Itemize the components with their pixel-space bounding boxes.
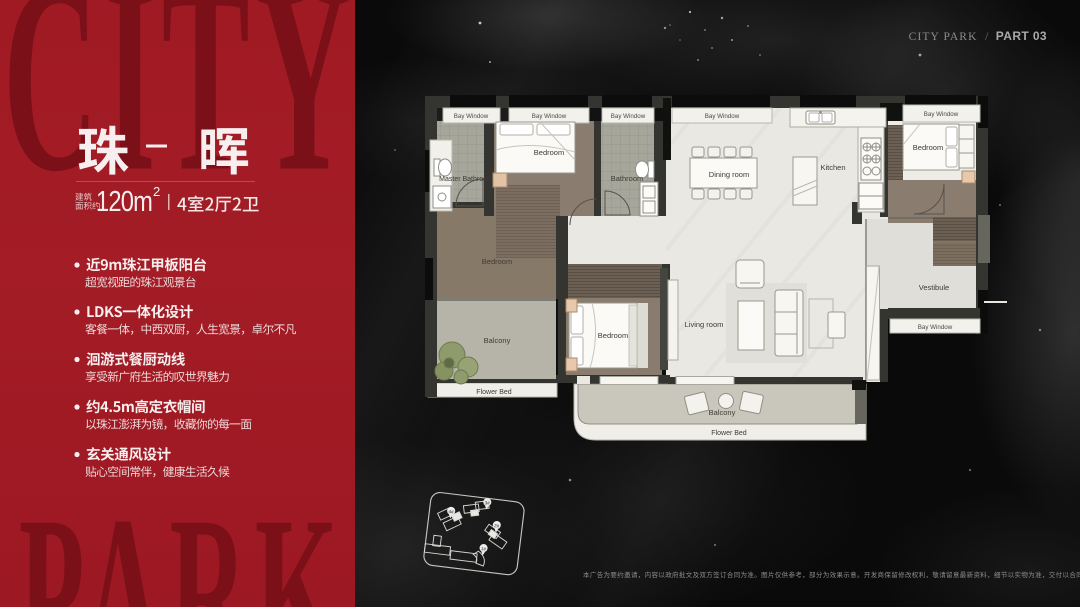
svg-text:Bay Window: Bay Window bbox=[454, 113, 489, 120]
svg-text:Bedroom: Bedroom bbox=[913, 143, 943, 152]
svg-text:Bay Window: Bay Window bbox=[532, 113, 567, 120]
svg-text:Bay Window: Bay Window bbox=[924, 111, 959, 118]
svg-text:Master Bathroom: Master Bathroom bbox=[439, 176, 493, 183]
svg-text:Bay Window: Bay Window bbox=[611, 113, 646, 120]
svg-text:Kitchen: Kitchen bbox=[820, 163, 845, 172]
svg-text:120m: 120m bbox=[96, 186, 152, 218]
svg-text:Bay Window: Bay Window bbox=[918, 324, 953, 331]
svg-text:Balcony: Balcony bbox=[709, 408, 736, 417]
svg-text:Dining room: Dining room bbox=[709, 170, 749, 179]
svg-text:Bedroom: Bedroom bbox=[598, 331, 628, 340]
svg-text:Bathroom: Bathroom bbox=[611, 174, 644, 183]
svg-text:Bay Window: Bay Window bbox=[705, 113, 740, 120]
svg-text:Vestibule: Vestibule bbox=[919, 283, 949, 292]
svg-text:Flower Bed: Flower Bed bbox=[476, 389, 512, 396]
svg-text:2: 2 bbox=[153, 184, 160, 199]
svg-text:Bedroom: Bedroom bbox=[534, 148, 564, 157]
svg-text:Flower Bed: Flower Bed bbox=[711, 430, 747, 437]
svg-text:Living room: Living room bbox=[685, 320, 724, 329]
svg-text:Balcony: Balcony bbox=[484, 336, 511, 345]
svg-text:Bedroom: Bedroom bbox=[482, 257, 512, 266]
